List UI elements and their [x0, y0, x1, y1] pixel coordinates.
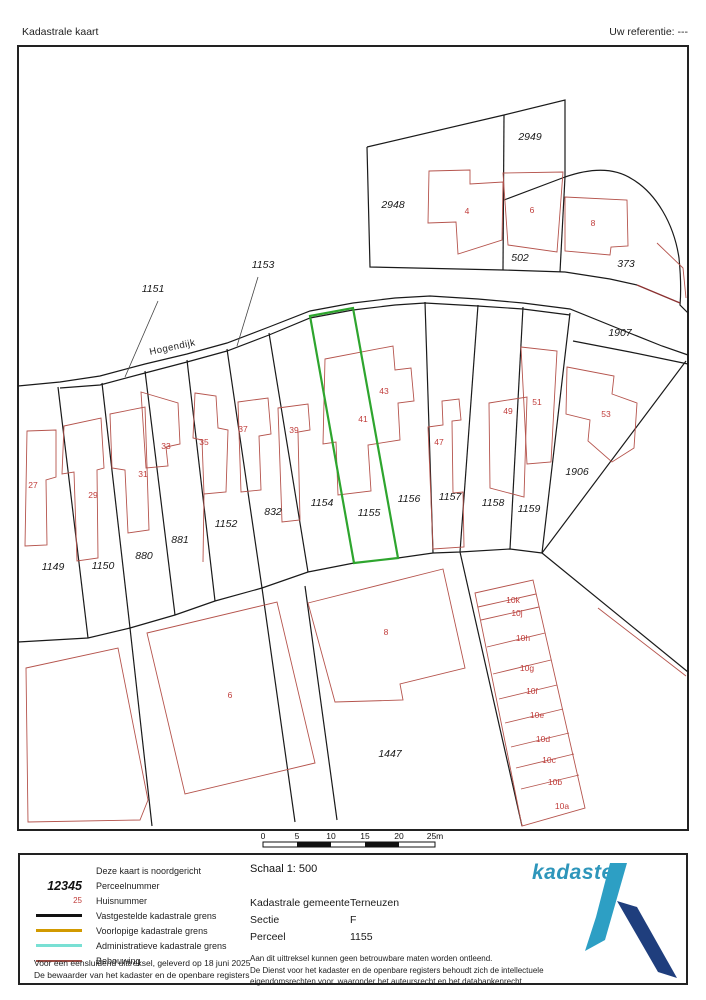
legend-north-row: Deze kaart is noordgericht	[34, 863, 264, 878]
parcel-number-label: 1906	[565, 466, 589, 478]
house-number-label: 37	[238, 424, 248, 434]
scale-tick-label: 5	[295, 831, 300, 841]
parcel-number-label: 1152	[215, 518, 238, 530]
info-row-sectie: Sectie F	[250, 914, 550, 931]
parcel-number-label: 373	[617, 258, 635, 270]
house-number-label: 4	[465, 206, 470, 216]
house-number-label: 27	[28, 480, 38, 490]
house-number-label: 10g	[520, 663, 534, 673]
legend-label: Administratieve kadastrale grens	[96, 941, 227, 951]
parcel-number-label: 502	[511, 252, 529, 264]
info-label: Sectie	[250, 914, 350, 931]
page: { "header": { "title": "Kadastrale kaart…	[0, 0, 706, 1000]
north-note: Deze kaart is noordgericht	[96, 866, 201, 876]
disclaimer: Aan dit uittreksel kunnen geen betrouwba…	[250, 953, 580, 988]
disclaimer-line3: eigendomsrechten voor, waaronder het aut…	[250, 976, 580, 988]
parcel-number-label: 1149	[42, 561, 65, 573]
delivery-note: Voor een eensluidend uittreksel, gelever…	[34, 958, 250, 981]
house-number-label: 10k	[506, 595, 520, 605]
administrative-boundary-line-swatch	[36, 944, 82, 947]
scale-bar-ticks: 0510152025m	[261, 831, 444, 841]
provisional-boundary-line-swatch	[36, 929, 82, 932]
house-number-label: 41	[358, 414, 368, 424]
info-row-perceel: Perceel 1155	[250, 931, 550, 948]
house-number-label: 51	[532, 397, 542, 407]
info-label: Perceel	[250, 931, 350, 948]
kadaster-logo-mark-icon	[580, 859, 680, 981]
house-number-label: 10e	[530, 710, 544, 720]
parcel-number-label: 1154	[311, 497, 334, 509]
scale-bar: 0510152025m	[261, 831, 444, 847]
parcel-number-sample: 12345	[47, 879, 82, 893]
parcel-number-label: 832	[264, 506, 282, 518]
house-number-label: 10b	[548, 777, 562, 787]
map-canvas: Hogendijk 294829495023731907190611511153…	[0, 0, 706, 1000]
parcel-number-label: 1156	[398, 493, 421, 505]
legend-row-administratieve-grens: Administratieve kadastrale grens	[34, 938, 264, 953]
parcel-number-label: 2948	[380, 199, 405, 211]
scale-tick-label: 20	[394, 831, 404, 841]
info-value: Terneuzen	[350, 897, 399, 914]
house-number-label: 10a	[555, 801, 569, 811]
info-value: F	[350, 914, 356, 931]
parcel-number-label: 880	[135, 550, 153, 562]
house-number-label: 10f	[526, 686, 538, 696]
parcel-number-label: 1157	[439, 491, 463, 503]
parcel-number-label: 1159	[518, 503, 541, 515]
delivery-note-line2: De bewaarder van het kadaster en de open…	[34, 970, 250, 982]
house-number-label: 6	[228, 690, 233, 700]
scale-tick-label: 0	[261, 831, 266, 841]
house-number-label: 10j	[511, 608, 522, 618]
disclaimer-line1: Aan dit uittreksel kunnen geen betrouwba…	[250, 953, 580, 965]
parcel-number-label: 881	[171, 534, 189, 546]
legend-label: Huisnummer	[96, 896, 147, 906]
house-number-label: 47	[434, 437, 444, 447]
legend-row-vastgestelde-grens: Vastgestelde kadastrale grens	[34, 908, 264, 923]
info-value: 1155	[350, 931, 373, 948]
legend-label: Voorlopige kadastrale grens	[96, 926, 208, 936]
house-number-label: 6	[530, 205, 535, 215]
house-number-label: 10d	[536, 734, 550, 744]
house-number-label: 31	[138, 469, 148, 479]
parcel-number-label: 1150	[92, 560, 115, 572]
legend-row-huisnummer: 25 Huisnummer	[34, 893, 264, 908]
house-number-label: 10h	[516, 633, 530, 643]
map-border	[18, 46, 688, 830]
legend-row-voorlopige-grens: Voorlopige kadastrale grens	[34, 923, 264, 938]
parcel-number-label: 1155	[358, 507, 381, 519]
legend: Deze kaart is noordgericht 12345 Perceel…	[34, 863, 264, 968]
parcel-number-label: 2949	[517, 131, 542, 143]
info-row-gemeente: Kadastrale gemeente Terneuzen	[250, 897, 550, 914]
house-number-label: 53	[601, 409, 611, 419]
house-number-label: 33	[161, 441, 171, 451]
house-number-label: 35	[199, 437, 209, 447]
house-number-sample: 25	[73, 896, 82, 905]
parcel-number-label: 1158	[482, 497, 505, 509]
extract-info: Schaal 1: 500 Kadastrale gemeente Terneu…	[250, 863, 550, 948]
parcel-number-label: 1151	[142, 283, 165, 295]
scale-text: Schaal 1: 500	[250, 863, 550, 875]
disclaimer-line2: De Dienst voor het kadaster en de openba…	[250, 965, 580, 977]
parcel-number-label: 1907	[608, 327, 633, 339]
established-boundary-line-swatch	[36, 914, 82, 917]
legend-row-perceelnummer: 12345 Perceelnummer	[34, 878, 264, 893]
house-number-label: 49	[503, 406, 513, 416]
scale-tick-label: 25m	[427, 831, 444, 841]
info-label: Kadastrale gemeente	[250, 897, 350, 914]
house-number-label: 8	[384, 627, 389, 637]
legend-label: Perceelnummer	[96, 881, 160, 891]
house-number-label: 43	[379, 386, 389, 396]
footer-box: Deze kaart is noordgericht 12345 Perceel…	[18, 853, 688, 985]
house-number-label: 8	[591, 218, 596, 228]
scale-tick-label: 10	[326, 831, 336, 841]
delivery-note-line1: Voor een eensluidend uittreksel, gelever…	[34, 958, 250, 970]
house-number-label: 10c	[542, 755, 556, 765]
scale-tick-label: 15	[360, 831, 370, 841]
parcel-number-label: 1447	[378, 748, 403, 760]
house-number-label: 39	[289, 425, 299, 435]
legend-label: Vastgestelde kadastrale grens	[96, 911, 216, 921]
house-number-label: 29	[88, 490, 98, 500]
parcel-number-label: 1153	[252, 259, 275, 271]
